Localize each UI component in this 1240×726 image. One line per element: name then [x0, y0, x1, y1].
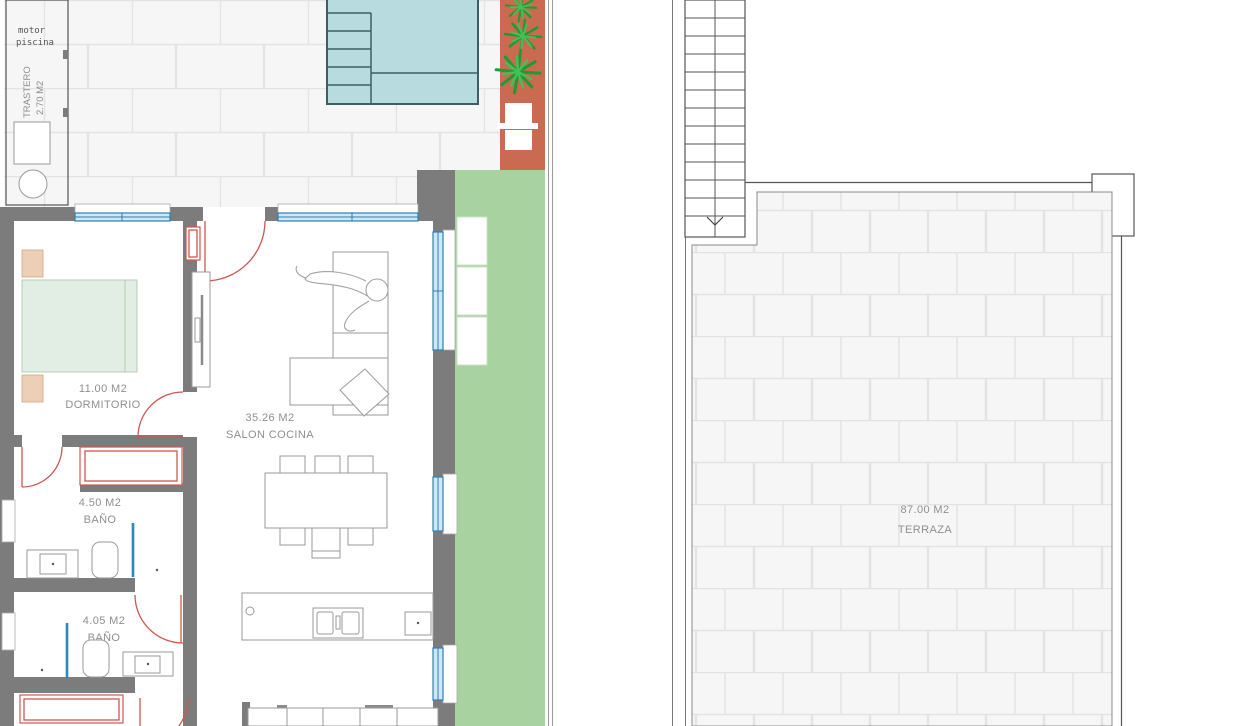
- bed: [22, 280, 137, 372]
- toilet: [92, 542, 118, 578]
- bath2-door: [135, 595, 183, 643]
- grass-lawn: [455, 170, 545, 726]
- wall-tick: [63, 50, 68, 59]
- trastero-area-label: 2.70 M2: [35, 81, 46, 115]
- pool-motor-unit: [14, 122, 50, 164]
- shower-tray: [80, 447, 182, 485]
- pump-circle: [19, 170, 47, 198]
- trastero-label: TRASTERO: [22, 66, 33, 118]
- bath2-bottom-wall: [14, 677, 135, 693]
- chair: [315, 456, 340, 473]
- floor-plan-drawing: motor piscina TRASTERO 2.70 M2: [0, 0, 1240, 726]
- bano1-label: BAÑO: [84, 513, 117, 526]
- bedroom-door: [138, 392, 183, 437]
- dormitorio-label: DORMITORIO: [65, 399, 140, 411]
- chair: [280, 528, 305, 545]
- bath1-door: [22, 447, 62, 487]
- salon-cocina-room: 35.26 M2 SALON COCINA: [186, 221, 438, 726]
- pool-water: [327, 0, 478, 104]
- drain-dot: [41, 669, 43, 671]
- dining-table: [265, 473, 387, 528]
- hall-door: [140, 698, 188, 726]
- bedroom-window: [75, 204, 170, 221]
- bano1-area-label: 4.50 M2: [79, 497, 122, 509]
- motor-note-line2: piscina: [16, 38, 54, 48]
- terraza-area-label: 87.00 M2: [900, 504, 949, 516]
- dining-set: [265, 456, 387, 558]
- terrace-plan: 87.00 M2 TERRAZA: [673, 0, 1135, 726]
- nightstand: [22, 375, 43, 402]
- bano1-room: 4.50 M2 BAÑO: [22, 447, 183, 643]
- chair: [280, 456, 305, 473]
- wall-tick: [63, 108, 68, 117]
- stepping-stone: [457, 217, 487, 265]
- bath-salon-wall: [183, 437, 197, 726]
- left-wall-niche: [2, 613, 15, 650]
- salon-window-right-1: [433, 230, 455, 350]
- bano2-area-label: 4.05 M2: [83, 615, 126, 627]
- plot-boundary-line: [549, 0, 553, 726]
- floor-plan-canvas: motor piscina TRASTERO 2.70 M2: [0, 0, 1240, 726]
- staircase: [685, 0, 745, 237]
- toilet: [83, 640, 109, 677]
- terraza-label: TERRAZA: [898, 524, 952, 536]
- pool: [327, 0, 478, 104]
- kitchen-island: [242, 593, 433, 640]
- chair: [312, 528, 340, 558]
- dormitorio-room: 11.00 M2 DORMITORIO: [22, 250, 183, 437]
- entry-door: [205, 221, 265, 281]
- motor-note-line1: motor: [18, 26, 46, 36]
- kitchen-cabinets: [248, 705, 438, 726]
- hall-closet: [20, 695, 123, 723]
- salon-label: SALON COCINA: [226, 429, 314, 441]
- chair: [348, 528, 373, 545]
- chair: [348, 456, 373, 473]
- ground-floor-plan: motor piscina TRASTERO 2.70 M2: [0, 0, 553, 726]
- terrace-plot-line: [673, 0, 686, 726]
- sink: [123, 652, 173, 676]
- bath1-bottom-wall: [14, 578, 135, 592]
- bath1-wall-stub: [14, 435, 22, 447]
- bano2-room: 4.05 M2 BAÑO: [20, 615, 188, 726]
- sink: [27, 550, 78, 578]
- red-paving-strip: [496, 0, 545, 170]
- left-wall-niche: [2, 500, 15, 542]
- terrace-tiles: [692, 192, 1112, 726]
- tv-unit: [192, 272, 210, 387]
- wall-niche-red: [186, 227, 200, 260]
- salon-window-right-2: [433, 474, 457, 534]
- stepping-stone: [457, 317, 487, 365]
- salon-window-top: [278, 204, 418, 221]
- stepping-stone: [457, 267, 487, 315]
- drain-dot: [156, 569, 158, 571]
- salon-area-label: 35.26 M2: [245, 412, 294, 424]
- entry-door-opening: [203, 207, 265, 221]
- nightstand: [22, 250, 43, 277]
- dormitorio-area-label: 11.00 M2: [79, 383, 127, 395]
- salon-window-right-3: [433, 645, 457, 703]
